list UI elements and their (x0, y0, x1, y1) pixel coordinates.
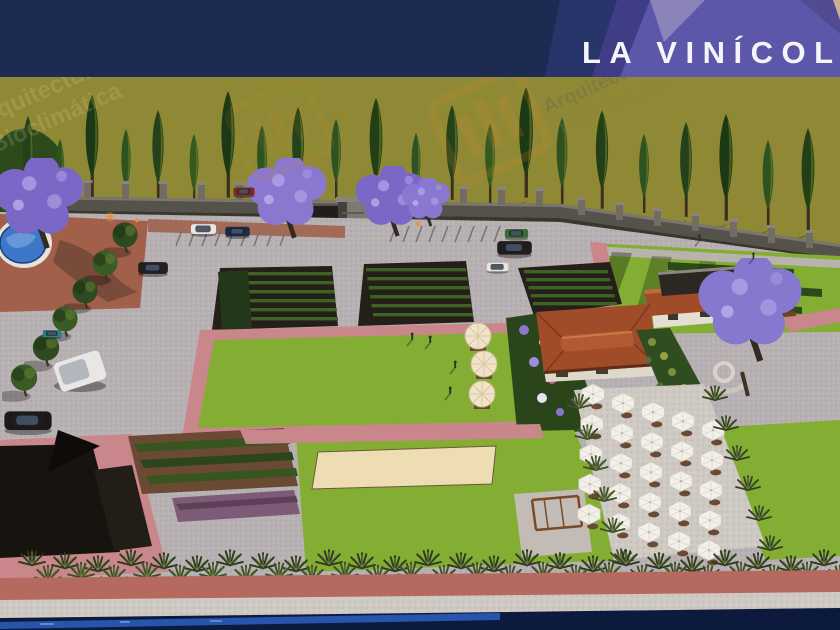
car (225, 227, 250, 239)
brand-banner: LA VINÍCOL (0, 0, 840, 77)
car (138, 262, 168, 277)
car (4, 411, 51, 435)
pickup-truck (191, 224, 216, 237)
car (487, 263, 508, 274)
car (497, 241, 532, 258)
garden-lamp (135, 218, 139, 222)
scene-svg: Arquitectura Bioclimática Arquitectura B… (0, 0, 840, 630)
brand-title: LA VINÍCOL (582, 35, 840, 70)
render-canvas: Arquitectura Bioclimática Arquitectura B… (0, 0, 840, 630)
car (43, 330, 62, 339)
cypress-hedge (218, 270, 252, 332)
garden-lamp (416, 222, 420, 226)
vineyard-block-center (358, 261, 474, 326)
truck (505, 229, 528, 241)
sand-court (312, 446, 496, 489)
restaurant-building (536, 304, 658, 382)
central-lawn (182, 322, 556, 438)
lawn (198, 332, 544, 428)
car (234, 188, 255, 199)
